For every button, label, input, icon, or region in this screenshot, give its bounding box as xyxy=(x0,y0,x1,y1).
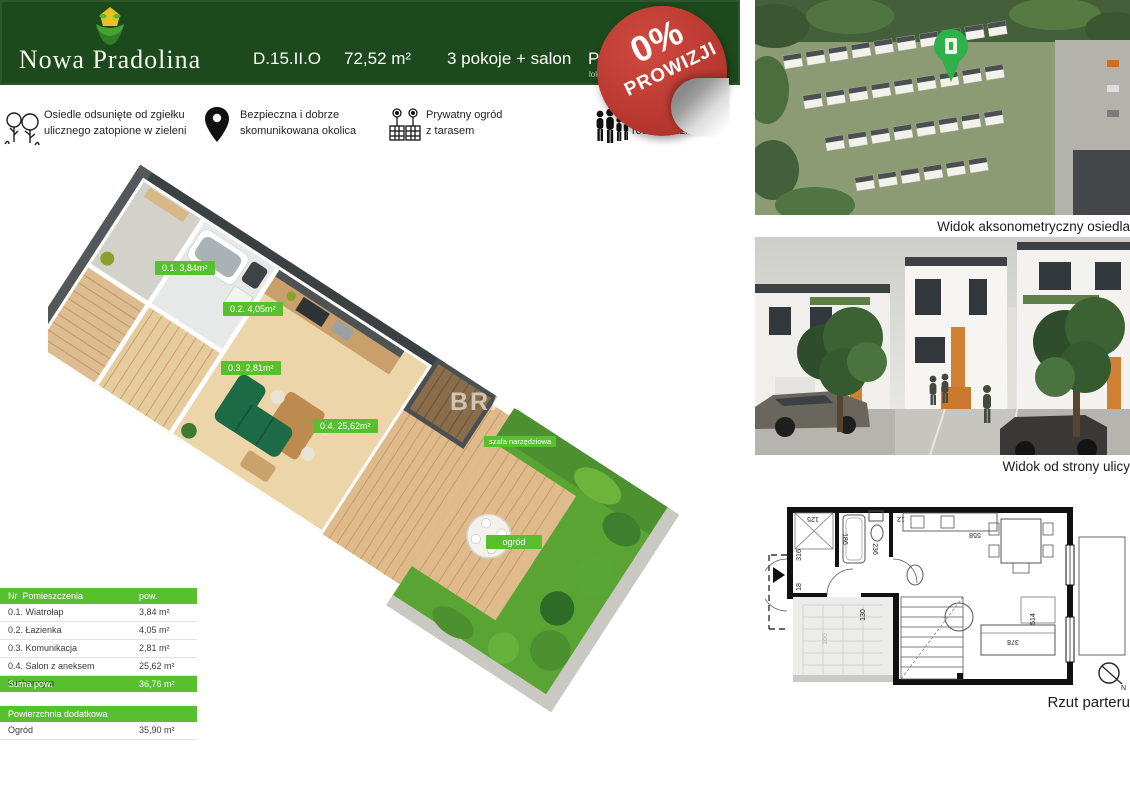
street-render-image xyxy=(755,237,1130,455)
unit-rooms: 3 pokoje + salon xyxy=(447,49,571,69)
room-label-0-2: 0.2. 4,05m² xyxy=(223,302,283,316)
feature-location-line1: Bezpieczna i dobrze xyxy=(240,108,356,124)
table-header-rooms: Nr Pomieszczenia xyxy=(0,588,139,604)
unit-code: D.15.II.O xyxy=(253,49,321,69)
aerial-caption: Widok aksonometryczny osiedla xyxy=(755,219,1130,234)
feature-greenery-line2: ulicznego zatopione w zieleni xyxy=(44,124,186,140)
map-pin-icon xyxy=(204,106,230,144)
table-sum-row: Suma pow. 36,76 m² xyxy=(0,676,197,692)
unit-area: 72,52 m² xyxy=(344,49,411,69)
svg-text:378: 378 xyxy=(1007,638,1019,645)
agency-watermark: BRACIA xyxy=(450,388,559,417)
feature-greenery-line1: Osiedle odsunięte od zgiełku xyxy=(44,108,186,124)
trees-icon xyxy=(4,108,40,146)
garden-label: ogród xyxy=(486,535,542,549)
svg-text:18: 18 xyxy=(796,583,803,591)
logo: Nowa Pradolina xyxy=(10,4,210,82)
svg-text:236: 236 xyxy=(871,543,878,555)
tool-shed-label: szafa narzędziowa xyxy=(484,436,556,447)
logo-icon xyxy=(89,6,131,46)
room-label-0-4: 0.4. 25,62m² xyxy=(313,419,378,433)
extra-area-header: Powierzchnia dodatkowa xyxy=(0,706,197,722)
room-label-0-3: 0.3. 2,81m² xyxy=(221,361,281,375)
aerial-render xyxy=(755,0,1130,215)
svg-text:130: 130 xyxy=(860,609,867,621)
svg-text:316: 316 xyxy=(796,549,803,561)
street-caption: Widok od strony ulicy xyxy=(755,459,1130,474)
feature-location-line2: skomunikowana okolica xyxy=(240,124,356,140)
technical-floor-plan-drawing: 125 316 18 186 236 130 12 558 514 378 16… xyxy=(765,497,1130,689)
feature-greenery: Osiedle odsunięte od zgiełku ulicznego z… xyxy=(4,100,204,156)
feature-garden: Prywatny ogród z tarasem xyxy=(388,100,558,156)
room-area-table: Nr Pomieszczenia pow. 0.1. Wiatrołap 3,8… xyxy=(0,588,197,740)
feature-garden-line2: z tarasem xyxy=(426,124,502,140)
feature-garden-line1: Prywatny ogród xyxy=(426,108,502,124)
svg-text:160: 160 xyxy=(822,633,829,645)
svg-text:186: 186 xyxy=(841,533,848,545)
svg-text:558: 558 xyxy=(969,531,981,538)
svg-text:125: 125 xyxy=(807,515,819,522)
garden-planters-icon xyxy=(388,106,422,144)
table-row: 0.2. Łazienka 4,05 m² xyxy=(0,622,197,640)
aerial-render-image xyxy=(755,0,1130,215)
table-header-area: pow. xyxy=(139,588,197,604)
table-row: 0.1. Wiatrołap 3,84 m² xyxy=(0,604,197,622)
technical-floor-plan: 125 316 18 186 236 130 12 558 514 378 16… xyxy=(765,497,1130,689)
svg-text:12: 12 xyxy=(897,515,905,522)
table-row: 0.3. Komunikacja 2,81 m² xyxy=(0,640,197,658)
compass-icon: N xyxy=(1096,660,1126,690)
floor-plan-caption: Rzut parteru xyxy=(930,694,1130,711)
table-header-row: Nr Pomieszczenia pow. xyxy=(0,588,197,604)
table-row: 0.4. Salon z aneksem kuchennym 25,62 m² xyxy=(0,658,197,676)
logo-title: Nowa Pradolina xyxy=(10,46,210,73)
feature-location: Bezpieczna i dobrze skomunikowana okolic… xyxy=(204,100,384,156)
room-label-0-1: 0.1. 3,84m² xyxy=(155,261,215,275)
street-render xyxy=(755,237,1130,455)
svg-text:514: 514 xyxy=(1030,613,1037,625)
car-right xyxy=(1000,415,1107,455)
svg-text:N: N xyxy=(1121,685,1126,690)
badge-page-curl-icon xyxy=(671,78,729,136)
no-commission-badge: 0% PROWIZJI xyxy=(597,6,727,136)
offer-sheet: Nowa Pradolina D.15.II.O 72,52 m² 3 poko… xyxy=(0,0,1130,800)
table-row-garden: Ogród 35,90 m² xyxy=(0,722,197,740)
